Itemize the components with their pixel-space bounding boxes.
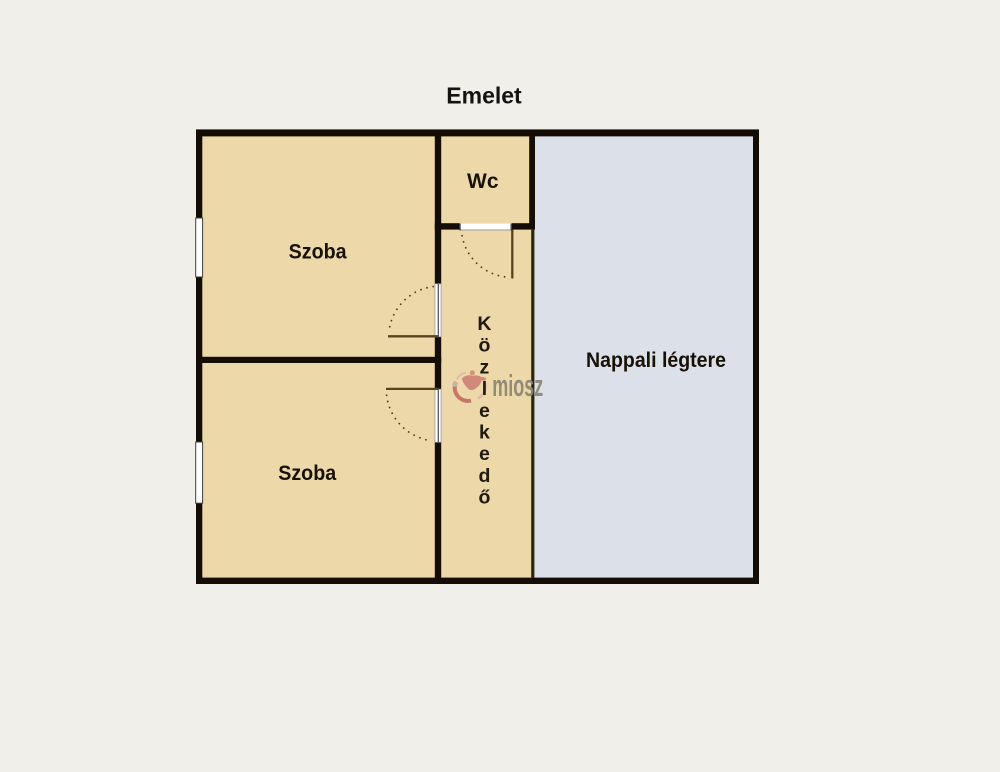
svg-text:Emelet: Emelet bbox=[446, 83, 522, 109]
svg-text:Nappali légtere: Nappali légtere bbox=[586, 349, 726, 372]
svg-text:l: l bbox=[482, 378, 487, 400]
svg-text:e: e bbox=[479, 443, 490, 465]
svg-text:d: d bbox=[478, 465, 490, 487]
svg-text:Wc: Wc bbox=[467, 170, 499, 193]
svg-text:ő: ő bbox=[478, 487, 490, 509]
svg-text:k: k bbox=[479, 422, 490, 444]
svg-text:K: K bbox=[477, 313, 491, 335]
svg-text:miosz: miosz bbox=[492, 368, 543, 403]
svg-text:Szoba: Szoba bbox=[289, 241, 347, 264]
svg-text:e: e bbox=[479, 400, 490, 422]
svg-text:z: z bbox=[480, 356, 490, 378]
svg-text:Szoba: Szoba bbox=[278, 462, 336, 485]
svg-text:ö: ö bbox=[478, 335, 490, 357]
